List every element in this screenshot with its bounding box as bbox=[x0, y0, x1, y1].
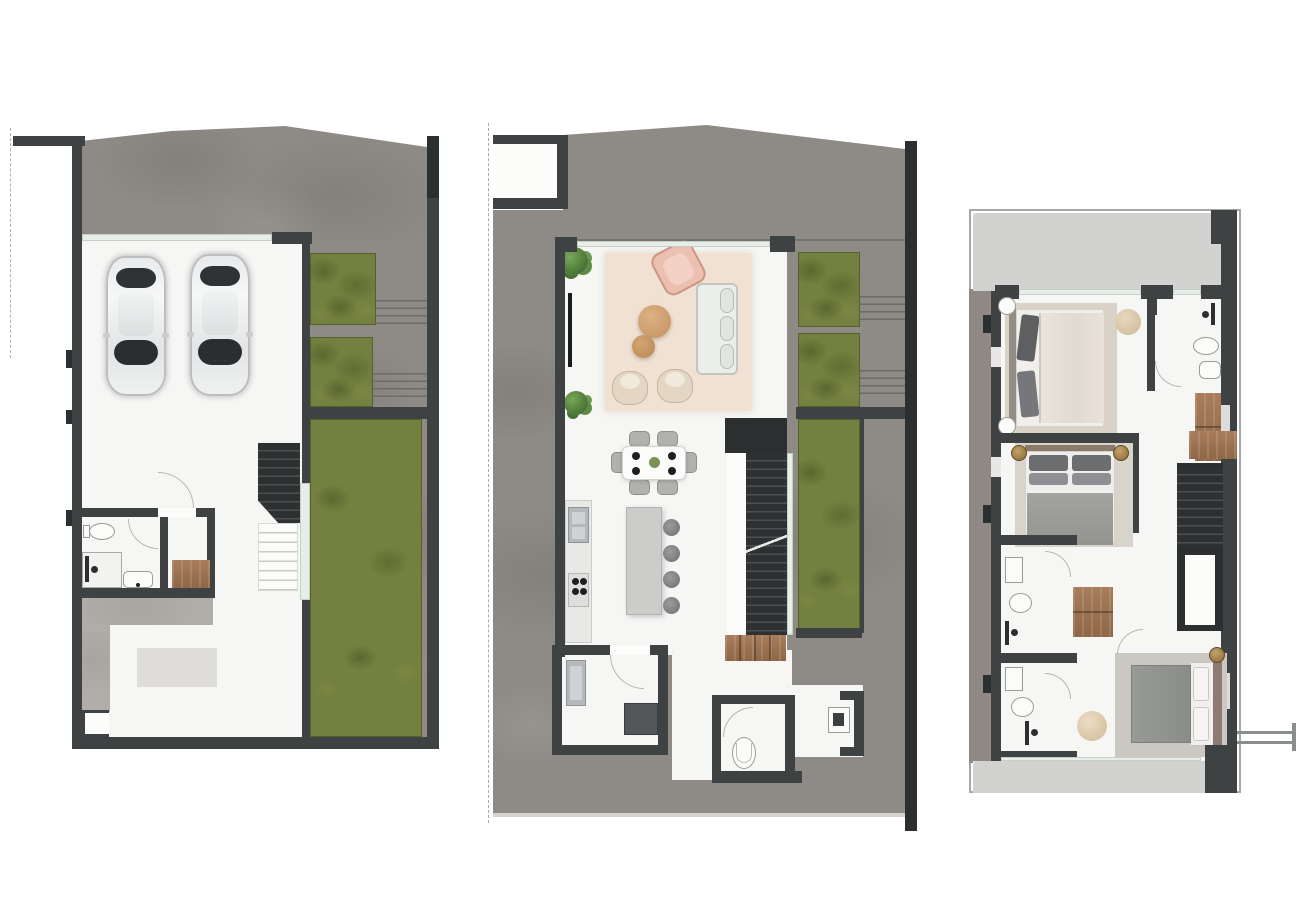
closet-wood-floor bbox=[172, 560, 210, 588]
laundry-wall-right bbox=[658, 655, 668, 755]
garden-wall bbox=[308, 407, 427, 419]
laundry-wall-bottom bbox=[552, 745, 668, 755]
front-terrace bbox=[973, 213, 1231, 291]
planter-bed-1 bbox=[310, 253, 376, 325]
entry-path-vertical bbox=[82, 625, 110, 712]
rear-terrace bbox=[973, 761, 1231, 793]
exterior-steps-1 bbox=[860, 290, 905, 324]
notch-wall-bottom bbox=[493, 198, 568, 209]
car-roof bbox=[118, 292, 155, 336]
bar-stool bbox=[663, 597, 680, 614]
utility-connection-cap bbox=[1292, 723, 1296, 751]
step-divider bbox=[754, 635, 756, 661]
utility-connection-line bbox=[1237, 731, 1295, 734]
lawn-bottom-wall bbox=[796, 628, 862, 638]
exterior-steps-2 bbox=[373, 367, 427, 400]
sofa-cushion bbox=[720, 316, 734, 341]
nightstand-gold bbox=[1209, 647, 1225, 663]
wall-pier bbox=[66, 510, 72, 526]
wc-wall-left bbox=[712, 704, 721, 780]
armchair-cushion bbox=[660, 251, 696, 288]
nightstand bbox=[998, 297, 1016, 315]
burner-icon bbox=[572, 588, 579, 595]
wall-pier bbox=[1141, 285, 1173, 299]
west-wall-window bbox=[991, 457, 1001, 477]
bed3-pillow bbox=[1193, 667, 1209, 701]
bathroom-partition-wall bbox=[160, 517, 168, 590]
basin-faucet-icon bbox=[136, 583, 140, 587]
entry-step-box bbox=[82, 710, 109, 737]
car-mirror-icon bbox=[162, 333, 169, 338]
boundary-wall-right-top bbox=[427, 136, 439, 198]
bed3-pillow bbox=[1193, 707, 1209, 741]
toilet bbox=[1009, 593, 1032, 613]
bed3-headboard bbox=[1213, 661, 1222, 747]
burner-icon bbox=[572, 578, 579, 585]
boundary-wall-bottom bbox=[72, 737, 439, 749]
site-edge-line bbox=[493, 813, 905, 817]
dining-chair bbox=[657, 479, 678, 495]
dining-table bbox=[622, 446, 686, 480]
bed2-pillow bbox=[1072, 473, 1111, 485]
coffee-table-large bbox=[638, 305, 671, 338]
cooktop bbox=[568, 573, 589, 607]
bathroom-divider-wall bbox=[1001, 653, 1077, 663]
wc-wall-top bbox=[712, 695, 795, 704]
place-setting-icon bbox=[668, 467, 676, 475]
lawn-edge-wall bbox=[860, 419, 864, 633]
garden-wall bbox=[796, 407, 917, 419]
boundary-wall-left bbox=[72, 136, 82, 748]
wall-pier bbox=[983, 505, 991, 523]
nightstand-gold bbox=[1011, 445, 1027, 461]
place-setting-icon bbox=[668, 452, 676, 460]
step-divider bbox=[769, 635, 771, 661]
sink-bowl bbox=[572, 512, 585, 524]
staircase-lower-flight bbox=[258, 523, 298, 591]
west-wall-window bbox=[991, 347, 1001, 367]
car-mirror-icon bbox=[246, 332, 253, 337]
shower-rail-icon bbox=[1025, 721, 1029, 745]
shower-rail-icon bbox=[85, 556, 89, 582]
wall-pier bbox=[66, 350, 72, 368]
bedroom1-window bbox=[1019, 289, 1141, 295]
sink-bowl bbox=[570, 666, 582, 700]
plan-main-floor bbox=[480, 95, 940, 835]
laundry-sink bbox=[566, 660, 586, 706]
lounge-chair bbox=[612, 371, 648, 405]
burner-icon bbox=[580, 578, 587, 585]
bar-stool bbox=[663, 571, 680, 588]
entry-rug bbox=[137, 648, 217, 687]
car-right bbox=[190, 254, 250, 396]
wall-pier bbox=[983, 315, 991, 333]
car-roof bbox=[202, 291, 239, 335]
lawn-tall bbox=[798, 419, 860, 633]
toilet bbox=[1011, 697, 1034, 717]
east-glass-wall bbox=[787, 453, 793, 635]
stair-window-glass bbox=[300, 483, 310, 600]
exterior-steps-1 bbox=[376, 294, 427, 325]
stair-landing-wall bbox=[725, 418, 787, 453]
wardrobe bbox=[1073, 587, 1113, 637]
nightstand-gold bbox=[1113, 445, 1129, 461]
bathroom1-window bbox=[1173, 289, 1201, 295]
floor-plan-sheet bbox=[0, 0, 1300, 910]
stair-well bbox=[727, 453, 746, 635]
stair-well bbox=[1185, 555, 1215, 625]
plant-icon bbox=[564, 391, 588, 415]
wall-pier bbox=[66, 410, 72, 424]
entry-path-horizontal bbox=[82, 598, 213, 625]
bathroom1-partition bbox=[1147, 291, 1155, 391]
stair-treads bbox=[1177, 467, 1223, 547]
wc-wall-right bbox=[785, 695, 795, 783]
bed2-pillow bbox=[1029, 473, 1068, 485]
planter-bed-2 bbox=[310, 337, 373, 407]
car-rear-window-icon bbox=[200, 266, 240, 287]
pouf bbox=[1115, 309, 1141, 335]
utility-connection-line bbox=[1237, 741, 1295, 744]
washbasin bbox=[1193, 337, 1219, 355]
centerpiece-icon bbox=[649, 457, 660, 468]
wardrobe-divider bbox=[1073, 611, 1113, 613]
shower-rail-icon bbox=[1211, 303, 1215, 325]
washbasin bbox=[1005, 557, 1023, 583]
bed2-pillow bbox=[1072, 455, 1111, 471]
step-divider bbox=[739, 635, 741, 661]
wardrobe-divider bbox=[1195, 426, 1221, 428]
lawn-large bbox=[310, 419, 422, 737]
shower-head-icon bbox=[1011, 629, 1018, 636]
sink-bowl bbox=[572, 527, 585, 539]
east-wall-upper bbox=[302, 240, 310, 483]
bathroom-door-opening bbox=[158, 508, 196, 517]
bathroom-wall-bottom bbox=[72, 588, 215, 598]
car-left bbox=[106, 256, 166, 396]
toilet-seat-line bbox=[736, 743, 752, 763]
sofa-cushion bbox=[720, 344, 734, 369]
dining-chair bbox=[629, 479, 650, 495]
coffee-table-small bbox=[632, 335, 655, 358]
garage-door-glass bbox=[82, 234, 272, 241]
staircase bbox=[1177, 463, 1223, 631]
bar-stool bbox=[663, 545, 680, 562]
shower-rail-icon bbox=[1005, 621, 1009, 645]
car-windshield-icon bbox=[114, 340, 158, 366]
bedroom2-wall-top bbox=[1001, 433, 1137, 443]
plan-ground-floor bbox=[10, 110, 455, 760]
planter-bed-2 bbox=[798, 333, 860, 407]
lounge-chair-seat bbox=[620, 374, 640, 389]
lounge-chair-seat bbox=[665, 372, 685, 387]
car-rear-window-icon bbox=[116, 268, 156, 288]
planter-bed-1 bbox=[798, 252, 860, 327]
laundry-wall-left bbox=[552, 645, 562, 755]
dining-chair bbox=[629, 431, 650, 447]
bar-stool bbox=[663, 519, 680, 536]
plan-upper-floor bbox=[965, 205, 1257, 797]
boundary-wall-right bbox=[427, 198, 439, 748]
shower-head-icon bbox=[91, 566, 98, 573]
toilet bbox=[89, 523, 115, 540]
car-mirror-icon bbox=[187, 332, 194, 337]
washing-machine bbox=[624, 703, 658, 735]
basin-bowl bbox=[833, 713, 844, 726]
bed3-blanket bbox=[1131, 665, 1191, 743]
wall-corner-ne bbox=[770, 236, 795, 252]
dining-chair bbox=[657, 431, 678, 447]
car-windshield-icon bbox=[198, 339, 242, 365]
site-notch bbox=[496, 143, 558, 201]
washbasin bbox=[1005, 667, 1023, 691]
site-boundary-dashed-line bbox=[488, 123, 489, 823]
kitchen-island bbox=[626, 507, 662, 615]
east-room-wall-right bbox=[854, 695, 864, 753]
sofa-cushion bbox=[720, 288, 734, 313]
kitchen-sink bbox=[568, 507, 589, 543]
shower-head-icon bbox=[1031, 729, 1038, 736]
wall-pier bbox=[983, 675, 991, 693]
north-window-strip bbox=[577, 241, 770, 247]
staircase-dark-flight bbox=[746, 453, 787, 635]
bathroom2-wall-top bbox=[1001, 535, 1077, 545]
site-boundary-dashed-line bbox=[10, 128, 11, 358]
notch-wall-right bbox=[557, 135, 568, 205]
east-wall-lower bbox=[302, 600, 310, 737]
wall-corner-se bbox=[1205, 745, 1237, 793]
driveway bbox=[72, 126, 427, 242]
media-wall-line bbox=[568, 293, 572, 367]
wood-steps bbox=[725, 635, 786, 661]
lounge-chair bbox=[657, 369, 693, 403]
boundary-wall-right bbox=[905, 141, 917, 831]
bed1-headboard bbox=[1009, 309, 1016, 427]
toilet bbox=[1199, 361, 1221, 379]
bed1-blanket bbox=[1039, 313, 1104, 423]
laundry-door-opening bbox=[610, 645, 650, 655]
sofa bbox=[696, 283, 738, 375]
place-setting-icon bbox=[632, 467, 640, 475]
car-mirror-icon bbox=[103, 333, 110, 338]
stair-rail-line bbox=[746, 453, 787, 635]
west-wall bbox=[555, 237, 565, 657]
utility-washbasin bbox=[828, 707, 850, 733]
place-setting-icon bbox=[632, 452, 640, 460]
shower-head-icon bbox=[1202, 311, 1209, 318]
wardrobe-by-stairs bbox=[1189, 431, 1237, 459]
pouf bbox=[1077, 711, 1107, 741]
toilet-cistern bbox=[83, 525, 90, 538]
east-room-wall-bottom bbox=[840, 747, 864, 756]
burner-icon bbox=[580, 588, 587, 595]
garage-front-wall bbox=[272, 232, 312, 244]
bed2-pillow bbox=[1029, 455, 1068, 471]
exterior-steps-2 bbox=[860, 364, 905, 398]
